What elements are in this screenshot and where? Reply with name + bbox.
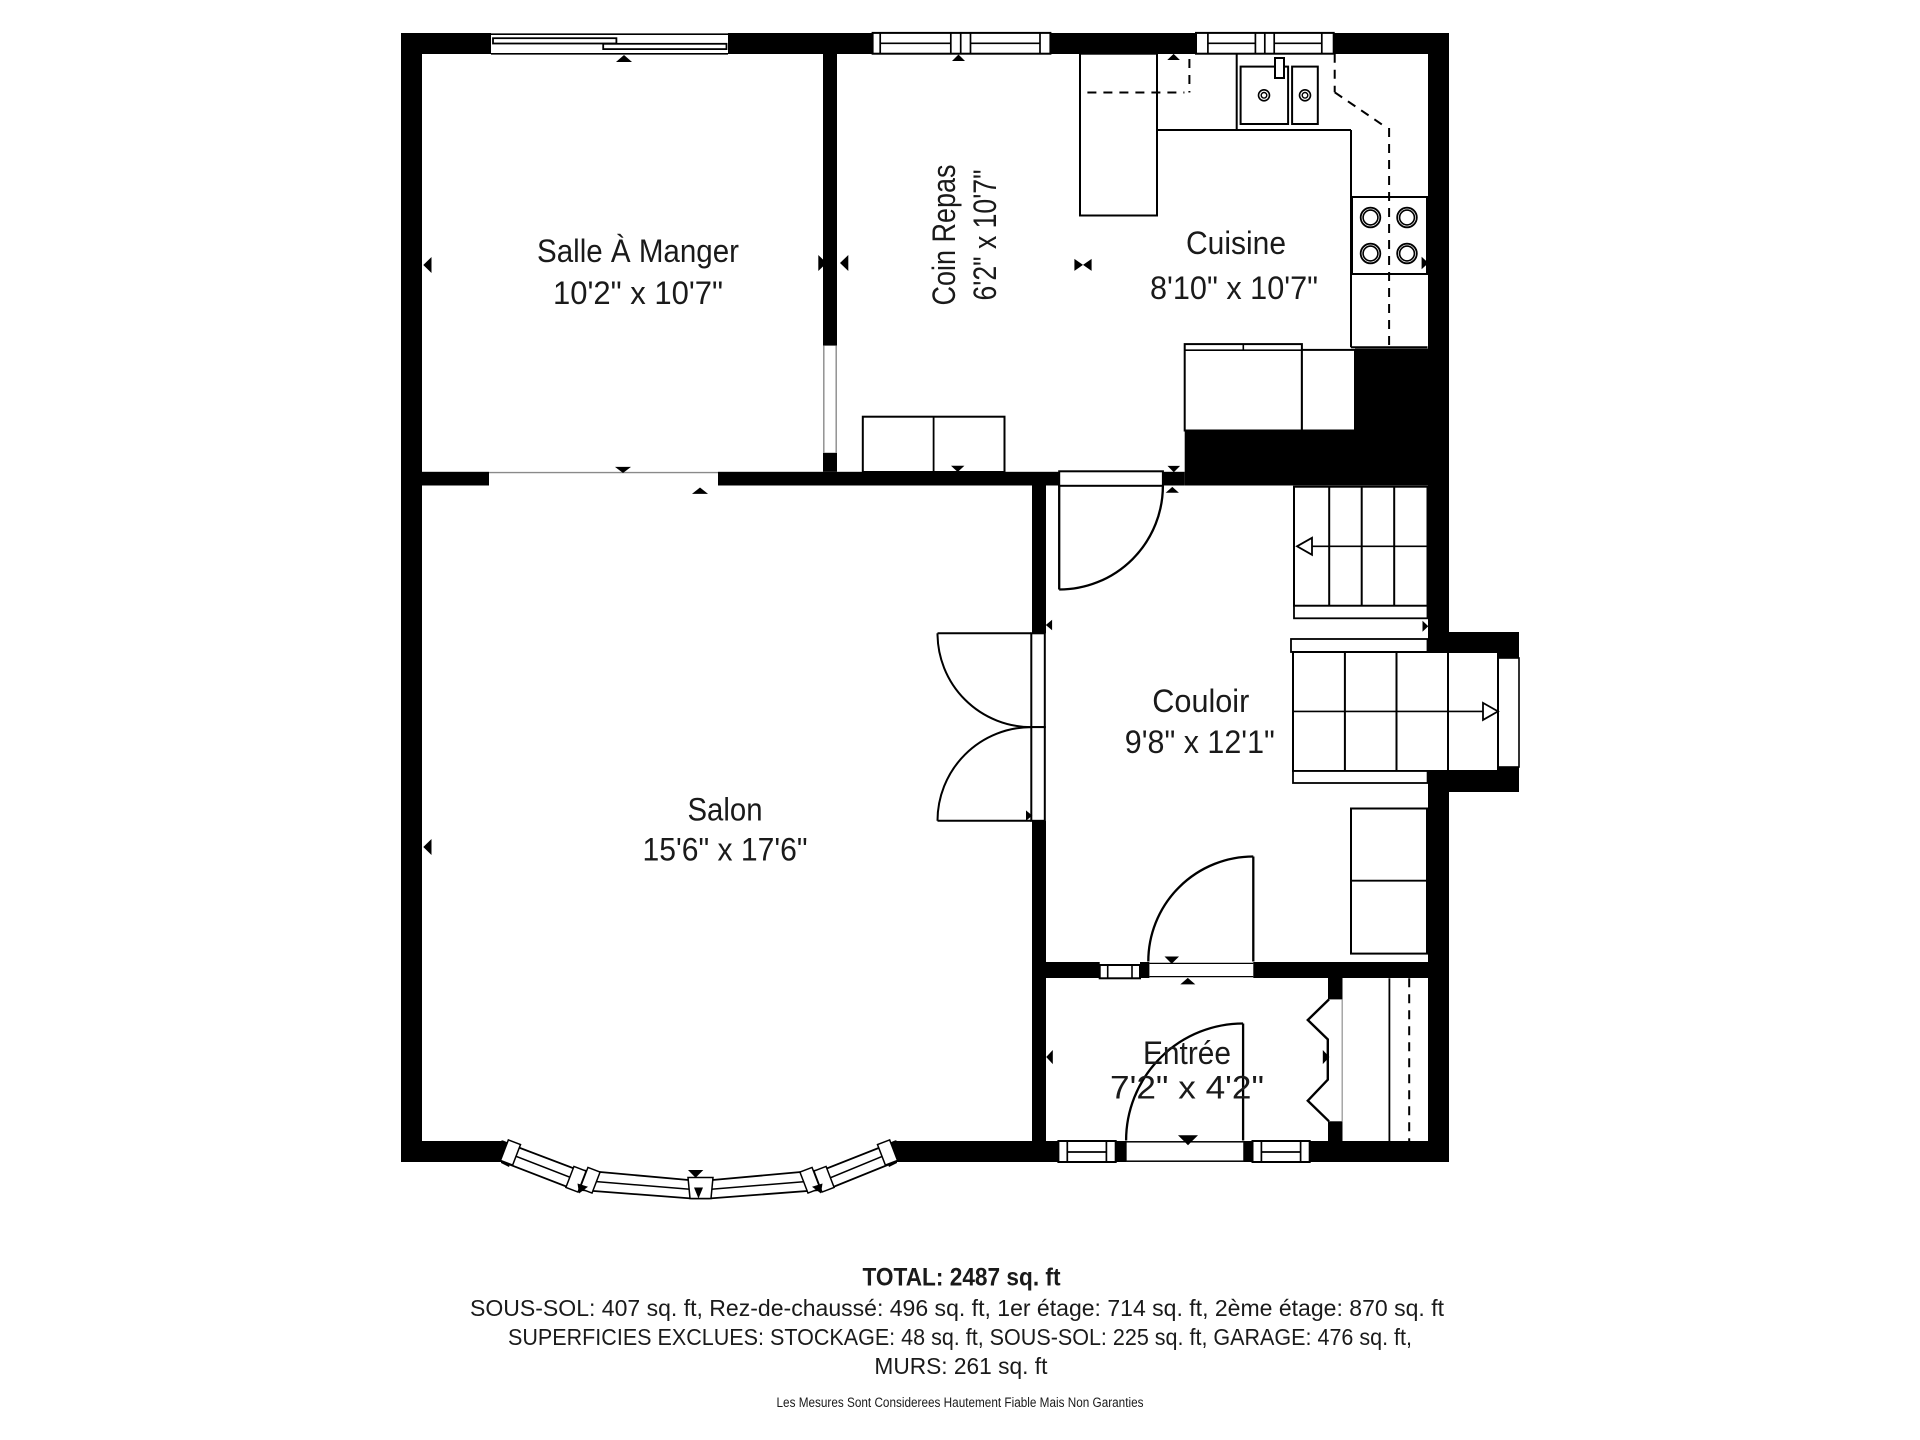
svg-text:Coin Repas: Coin Repas (926, 165, 962, 306)
svg-text:9'8" x 12'1": 9'8" x 12'1" (1125, 724, 1275, 760)
svg-text:TOTAL: 2487 sq. ft: TOTAL: 2487 sq. ft (863, 1264, 1062, 1292)
svg-text:6'2" x 10'7": 6'2" x 10'7" (967, 170, 1003, 301)
svg-text:10'2" x 10'7": 10'2" x 10'7" (553, 275, 723, 311)
svg-text:Salon: Salon (688, 792, 763, 828)
svg-text:Les Mesures Sont Considerees H: Les Mesures Sont Considerees Hautement F… (777, 1395, 1144, 1410)
svg-text:SUPERFICIES EXCLUES: STOCKAGE:: SUPERFICIES EXCLUES: STOCKAGE: 48 sq. ft… (508, 1324, 1412, 1350)
svg-text:Cuisine: Cuisine (1186, 225, 1286, 261)
svg-text:Salle À Manger: Salle À Manger (537, 233, 739, 269)
svg-text:7'2" x 4'2": 7'2" x 4'2" (1110, 1070, 1264, 1106)
svg-text:15'6" x 17'6": 15'6" x 17'6" (643, 832, 808, 868)
svg-text:SOUS-SOL: 407 sq. ft, Rez-de-c: SOUS-SOL: 407 sq. ft, Rez-de-chaussé: 49… (470, 1295, 1445, 1321)
svg-text:8'10" x 10'7": 8'10" x 10'7" (1150, 270, 1318, 306)
svg-text:Couloir: Couloir (1152, 683, 1249, 719)
svg-text:Entrée: Entrée (1143, 1035, 1231, 1071)
svg-text:MURS: 261 sq. ft: MURS: 261 sq. ft (874, 1353, 1048, 1379)
